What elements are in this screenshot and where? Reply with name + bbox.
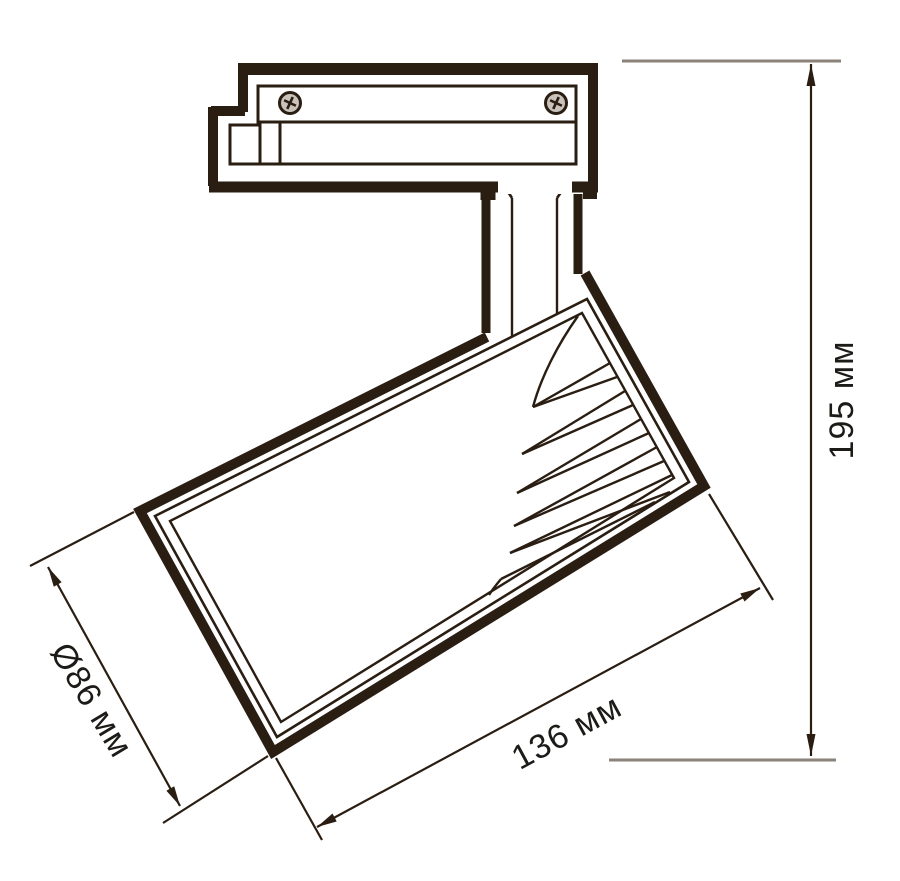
screw-left-icon: [280, 93, 301, 114]
arrowhead: [807, 734, 816, 756]
spotlight-dimension-drawing: Ø86 мм 136 мм 195 мм: [0, 0, 900, 881]
screw-right-icon: [546, 93, 567, 114]
height-label: 195 мм: [823, 341, 861, 460]
arrowhead: [48, 567, 62, 587]
diameter-label: Ø86 мм: [43, 636, 141, 764]
arrowhead: [740, 588, 760, 602]
extension-line: [30, 512, 134, 566]
drawing-canvas: Ø86 мм 136 мм 195 мм: [0, 0, 900, 881]
arrowhead: [807, 64, 816, 86]
extension-line: [709, 494, 773, 600]
lamp-head: [140, 273, 704, 752]
length-label: 136 мм: [505, 687, 628, 777]
extension-line: [163, 756, 268, 823]
extension-line: [276, 758, 322, 840]
arrowhead: [317, 814, 337, 828]
adapter-side-tab: [230, 125, 260, 164]
track-adapter: [209, 64, 598, 333]
adapter-inner-plate: [258, 86, 576, 164]
arrowhead: [166, 786, 180, 806]
